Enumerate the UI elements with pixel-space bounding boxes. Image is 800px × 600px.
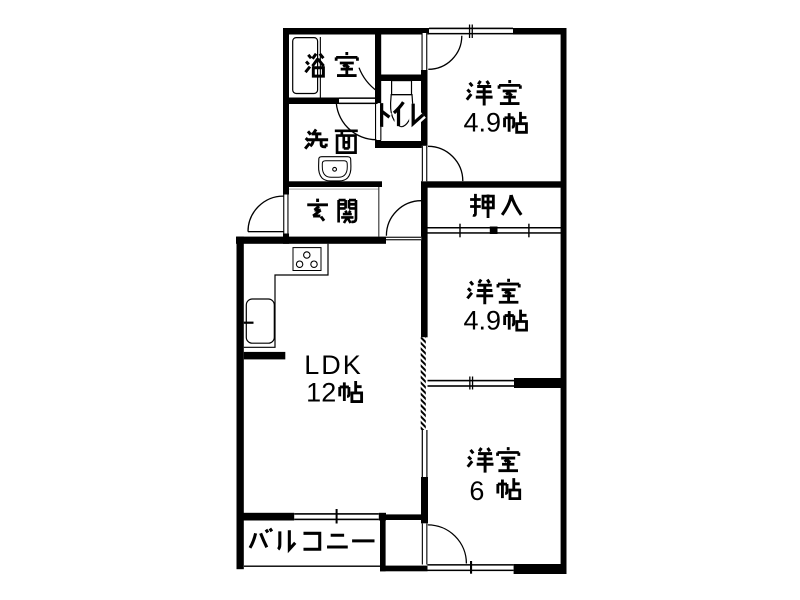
svg-text:4.9: 4.9 xyxy=(464,108,502,138)
svg-text:4.9: 4.9 xyxy=(464,306,502,336)
svg-text:12: 12 xyxy=(306,377,336,407)
svg-text:6: 6 xyxy=(469,476,484,506)
svg-text:LDK: LDK xyxy=(304,350,363,380)
